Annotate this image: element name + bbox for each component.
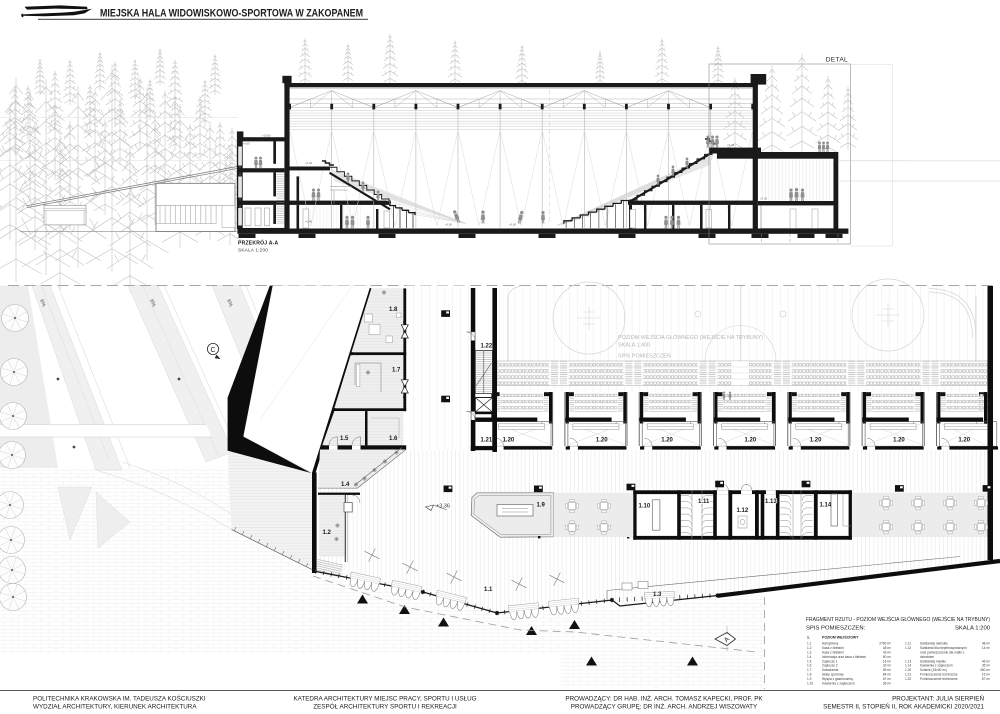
svg-text:1.10: 1.10 <box>807 681 813 685</box>
svg-text:Sanitariaty damskie: Sanitariaty damskie <box>920 642 948 646</box>
svg-text:MIEJSKA HALA WIDOWISKOWO-SPORT: MIEJSKA HALA WIDOWISKOWO-SPORTOWA W ZAKO… <box>100 7 363 19</box>
svg-text:67 m²: 67 m² <box>982 677 990 681</box>
svg-text:POLITECHNIKA KRAKOWSKA IM. TAD: POLITECHNIKA KRAKOWSKA IM. TADEUSZA KOŚC… <box>33 694 206 703</box>
svg-text:dzieckiem: dzieckiem <box>920 655 935 659</box>
svg-text:1.20: 1.20 <box>503 438 515 444</box>
svg-text:1.11: 1.11 <box>698 499 710 505</box>
svg-text:Pomieszczenie techniczne: Pomieszczenie techniczne <box>920 677 958 681</box>
svg-text:36 m²: 36 m² <box>883 681 891 685</box>
svg-text:ZESPÓŁ ARCHITEKTURY SPORTU I: ZESPÓŁ ARCHITEKTURY SPORTU I REKREACJI <box>313 702 457 711</box>
svg-text:Kasa z biletami: Kasa z biletami <box>822 650 844 654</box>
svg-text:1.20: 1.20 <box>661 438 673 444</box>
svg-text:2760 m²: 2760 m² <box>879 642 891 646</box>
svg-text:SKALA 1:200: SKALA 1:200 <box>238 248 268 253</box>
svg-text:1.2: 1.2 <box>323 530 332 536</box>
svg-text:1.20: 1.20 <box>810 438 822 444</box>
svg-text:15 m²: 15 m² <box>982 673 990 677</box>
svg-text:1.8: 1.8 <box>807 673 812 677</box>
svg-text:1.14: 1.14 <box>820 503 832 509</box>
svg-text:1.11: 1.11 <box>905 642 911 646</box>
svg-text:60 m²: 60 m² <box>883 655 891 659</box>
svg-text:Kawiarnia z zapleczem: Kawiarnia z zapleczem <box>822 681 855 685</box>
svg-text:1.3: 1.3 <box>653 592 662 598</box>
svg-text:14 m²: 14 m² <box>982 646 990 650</box>
svg-text:1.7: 1.7 <box>807 668 812 672</box>
svg-text:1.22: 1.22 <box>481 344 493 350</box>
svg-text:C: C <box>210 347 215 354</box>
svg-text:1.6: 1.6 <box>389 436 398 442</box>
svg-text:1.13: 1.13 <box>905 659 911 663</box>
svg-text:1.12: 1.12 <box>905 646 911 650</box>
svg-text:1.1: 1.1 <box>807 642 812 646</box>
svg-text:SEMESTR II, STOPIEŃ II, ROK AK: SEMESTR II, STOPIEŃ II, ROK AKADEMICKI 2… <box>823 702 984 711</box>
svg-text:48 m²: 48 m² <box>982 642 990 646</box>
svg-text:48 m²: 48 m² <box>883 646 891 650</box>
svg-text:1.13: 1.13 <box>765 499 777 505</box>
svg-text:PROWADZĄCY: DR HAB. INŻ. ARCH.: PROWADZĄCY: DR HAB. INŻ. ARCH. TOMASZ KA… <box>565 694 763 703</box>
svg-text:DETAL: DETAL <box>826 57 848 64</box>
svg-text:Sklep sportowy: Sklep sportowy <box>822 673 844 677</box>
svg-text:1.20: 1.20 <box>745 438 757 444</box>
svg-text:Kwiaciarnia: Kwiaciarnia <box>822 668 839 672</box>
svg-text:1.8: 1.8 <box>389 307 398 313</box>
svg-text:1.12: 1.12 <box>737 508 749 514</box>
svg-text:Sanitariat dla niepełnosprawny: Sanitariat dla niepełnosprawnych <box>920 646 967 650</box>
svg-text:PRZEKRÓJ A-A: PRZEKRÓJ A-A <box>238 239 279 247</box>
svg-text:1.9: 1.9 <box>537 503 546 509</box>
svg-text:FRAGMENT RZUTU - POZIOM WEJŚCI: FRAGMENT RZUTU - POZIOM WEJŚCIA GŁÓWNEGO… <box>806 615 990 623</box>
svg-text:POZIOM WEJŚCIOWY: POZIOM WEJŚCIOWY <box>822 635 859 640</box>
svg-text:WYDZIAŁ ARCHITEKTURY, KIERUNEK: WYDZIAŁ ARCHITEKTURY, KIERUNEK ARCHITEKT… <box>33 704 197 711</box>
svg-text:46 m²: 46 m² <box>982 659 990 663</box>
svg-text:+6,40: +6,40 <box>727 143 735 147</box>
svg-text:Kawiarnia z zapleczem: Kawiarnia z zapleczem <box>920 664 953 668</box>
svg-text:+10,80: +10,80 <box>262 133 271 137</box>
svg-text:1.: 1. <box>807 636 810 640</box>
svg-text:1.4: 1.4 <box>807 655 812 659</box>
svg-text:1.5: 1.5 <box>340 436 349 442</box>
svg-text:32 m²: 32 m² <box>883 664 891 668</box>
svg-text:Wyspa z gastronomią: Wyspa z gastronomią <box>822 677 853 681</box>
svg-text:Hall główny: Hall główny <box>822 642 839 646</box>
svg-text:+3,36: +3,36 <box>760 196 768 200</box>
svg-text:Sanitariaty męskie: Sanitariaty męskie <box>920 659 946 663</box>
svg-text:84 m²: 84 m² <box>883 673 891 677</box>
svg-text:450 m²: 450 m² <box>980 668 990 672</box>
svg-text:35 m²: 35 m² <box>982 664 990 668</box>
svg-text:Zaplecze 1: Zaplecze 1 <box>822 659 838 663</box>
svg-text:1.20: 1.20 <box>596 438 608 444</box>
svg-text:+9,60: +9,60 <box>243 142 251 146</box>
svg-text:SKALA 1:400: SKALA 1:400 <box>618 343 650 349</box>
svg-text:1.6: 1.6 <box>807 664 812 668</box>
svg-text:1.2: 1.2 <box>807 646 812 650</box>
svg-text:1.21: 1.21 <box>905 673 911 677</box>
svg-text:PROJEKTANT: JULIA SIERPIEŃ: PROJEKTANT: JULIA SIERPIEŃ <box>892 694 984 703</box>
svg-text:+0,46: +0,46 <box>305 220 313 224</box>
svg-text:1.20: 1.20 <box>893 438 905 444</box>
svg-text:Pomieszczenie techniczne: Pomieszczenie techniczne <box>920 673 958 677</box>
svg-text:1.14: 1.14 <box>905 664 911 668</box>
svg-text:+6,40: +6,40 <box>305 161 313 165</box>
svg-text:Szatnie (15x30 m²): Szatnie (15x30 m²) <box>920 668 947 672</box>
svg-text:69 m²: 69 m² <box>883 668 891 672</box>
svg-text:1.1: 1.1 <box>484 587 493 593</box>
svg-text:PROWADZĄCY GRUPĘ: DR INŻ. ARCH: PROWADZĄCY GRUPĘ: DR INŻ. ARCH. ANDRZEJ … <box>571 702 758 711</box>
svg-text:1.3: 1.3 <box>807 650 812 654</box>
svg-text:1.22: 1.22 <box>905 677 911 681</box>
svg-text:16 m²: 16 m² <box>883 659 891 663</box>
svg-text:SPIS POMIESZCZEŃ:: SPIS POMIESZCZEŃ: <box>806 625 866 632</box>
svg-text:Zaplecze 2: Zaplecze 2 <box>822 664 838 668</box>
svg-text:Kasa z biletami: Kasa z biletami <box>822 646 844 650</box>
svg-text:1.9: 1.9 <box>807 677 812 681</box>
svg-text:43 m²: 43 m² <box>883 650 891 654</box>
svg-text:1.7: 1.7 <box>392 368 401 374</box>
svg-text:SKALA 1:200: SKALA 1:200 <box>955 626 991 632</box>
svg-text:oraz pomieszczenie dla matki z: oraz pomieszczenie dla matki z <box>920 650 965 654</box>
svg-text:1.5: 1.5 <box>807 659 812 663</box>
svg-text:KATEDRA ARCHITEKTURY MIEJSC PR: KATEDRA ARCHITEKTURY MIEJSC PRACY, SPORT… <box>293 696 476 703</box>
svg-text:+0,00: +0,00 <box>509 223 517 227</box>
svg-text:67 m²: 67 m² <box>883 677 891 681</box>
svg-text:1.10: 1.10 <box>639 504 651 510</box>
svg-text:+0,00: +0,00 <box>445 223 453 227</box>
svg-text:1.21: 1.21 <box>481 438 493 444</box>
svg-text:POZIOM WEJŚCIA GŁÓWNEGO (WEJŚC: POZIOM WEJŚCIA GŁÓWNEGO (WEJŚCIE NA TRYB… <box>618 333 763 341</box>
svg-text:1.4: 1.4 <box>341 482 350 488</box>
svg-text:SPIS POMIESZCZEŃ: SPIS POMIESZCZEŃ <box>618 353 671 360</box>
svg-text:1.20: 1.20 <box>905 668 911 672</box>
svg-text:1.20: 1.20 <box>958 438 970 444</box>
svg-text:Informacja oraz kasa z biletam: Informacja oraz kasa z biletami <box>822 655 866 659</box>
